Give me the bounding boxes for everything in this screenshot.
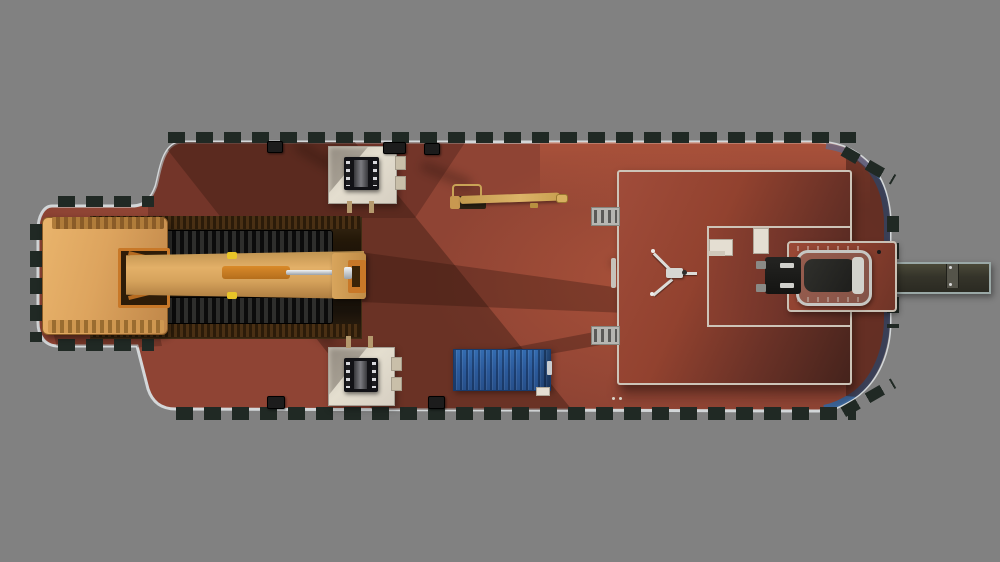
winch-drum — [354, 160, 368, 187]
deck-bollard — [267, 141, 283, 153]
cab-mirror — [756, 284, 766, 292]
fenders-bow-top — [58, 196, 154, 207]
crane-boom-tip — [556, 194, 568, 203]
cab-light — [780, 263, 794, 268]
shipping-container — [453, 349, 551, 391]
rod-end — [344, 267, 352, 279]
deck-pipe — [611, 258, 616, 288]
platform-step — [391, 357, 402, 371]
container-door-latch — [547, 361, 552, 375]
render-canvas — [0, 0, 1000, 562]
platform-leg — [346, 336, 351, 348]
deck-bollard — [383, 142, 406, 154]
winch-flange — [346, 161, 350, 186]
gangway-ramp — [892, 262, 991, 294]
antenna-tripod-body — [666, 268, 683, 278]
gangway-bolt — [949, 266, 952, 269]
fenders-bow-bottom — [58, 339, 154, 351]
tripod-foot — [651, 249, 655, 253]
access-ladder-aft — [591, 326, 620, 345]
crawler-track-lower — [163, 297, 333, 324]
deck-fitting-dot — [619, 397, 622, 400]
winch-flange — [373, 161, 377, 186]
deck-bollard — [424, 143, 440, 155]
crane-base-cap — [450, 196, 460, 209]
platform-step — [395, 176, 406, 190]
platform-dot — [877, 250, 881, 254]
hydraulic-valve — [227, 252, 237, 259]
bucket-teeth-top — [52, 217, 164, 229]
winch-drum — [354, 361, 367, 389]
deck-locker — [753, 228, 769, 254]
vehicle-on-cradle — [804, 259, 856, 292]
deck-fitting-dot — [612, 397, 615, 400]
gangway-hinge — [946, 264, 959, 288]
boom-foot-slot — [352, 266, 360, 287]
crane-hook — [530, 203, 538, 208]
access-ladder-fore — [591, 207, 620, 226]
bucket-teeth-bottom — [48, 320, 164, 333]
antenna-head — [682, 270, 687, 275]
platform-leg — [369, 201, 374, 213]
gangway-bolt — [949, 283, 952, 286]
fenders-bow-left — [30, 224, 42, 342]
cab-mirror — [756, 261, 766, 269]
winch-flange — [372, 362, 376, 388]
hydraulic-cylinder — [222, 266, 290, 279]
platform-step — [391, 377, 402, 391]
winch-flange — [346, 362, 350, 388]
deck-bollard — [267, 396, 285, 409]
platform-leg — [347, 201, 352, 213]
tripod-foot — [650, 292, 654, 296]
deck-bench-lip — [709, 251, 725, 256]
vehicle-end-cap — [852, 257, 864, 294]
cab-light — [780, 283, 794, 288]
container-side-box — [536, 387, 550, 396]
deck-bollard — [428, 396, 445, 409]
platform-step — [395, 156, 406, 170]
platform-leg — [368, 336, 373, 348]
hydraulic-valve — [227, 292, 237, 299]
